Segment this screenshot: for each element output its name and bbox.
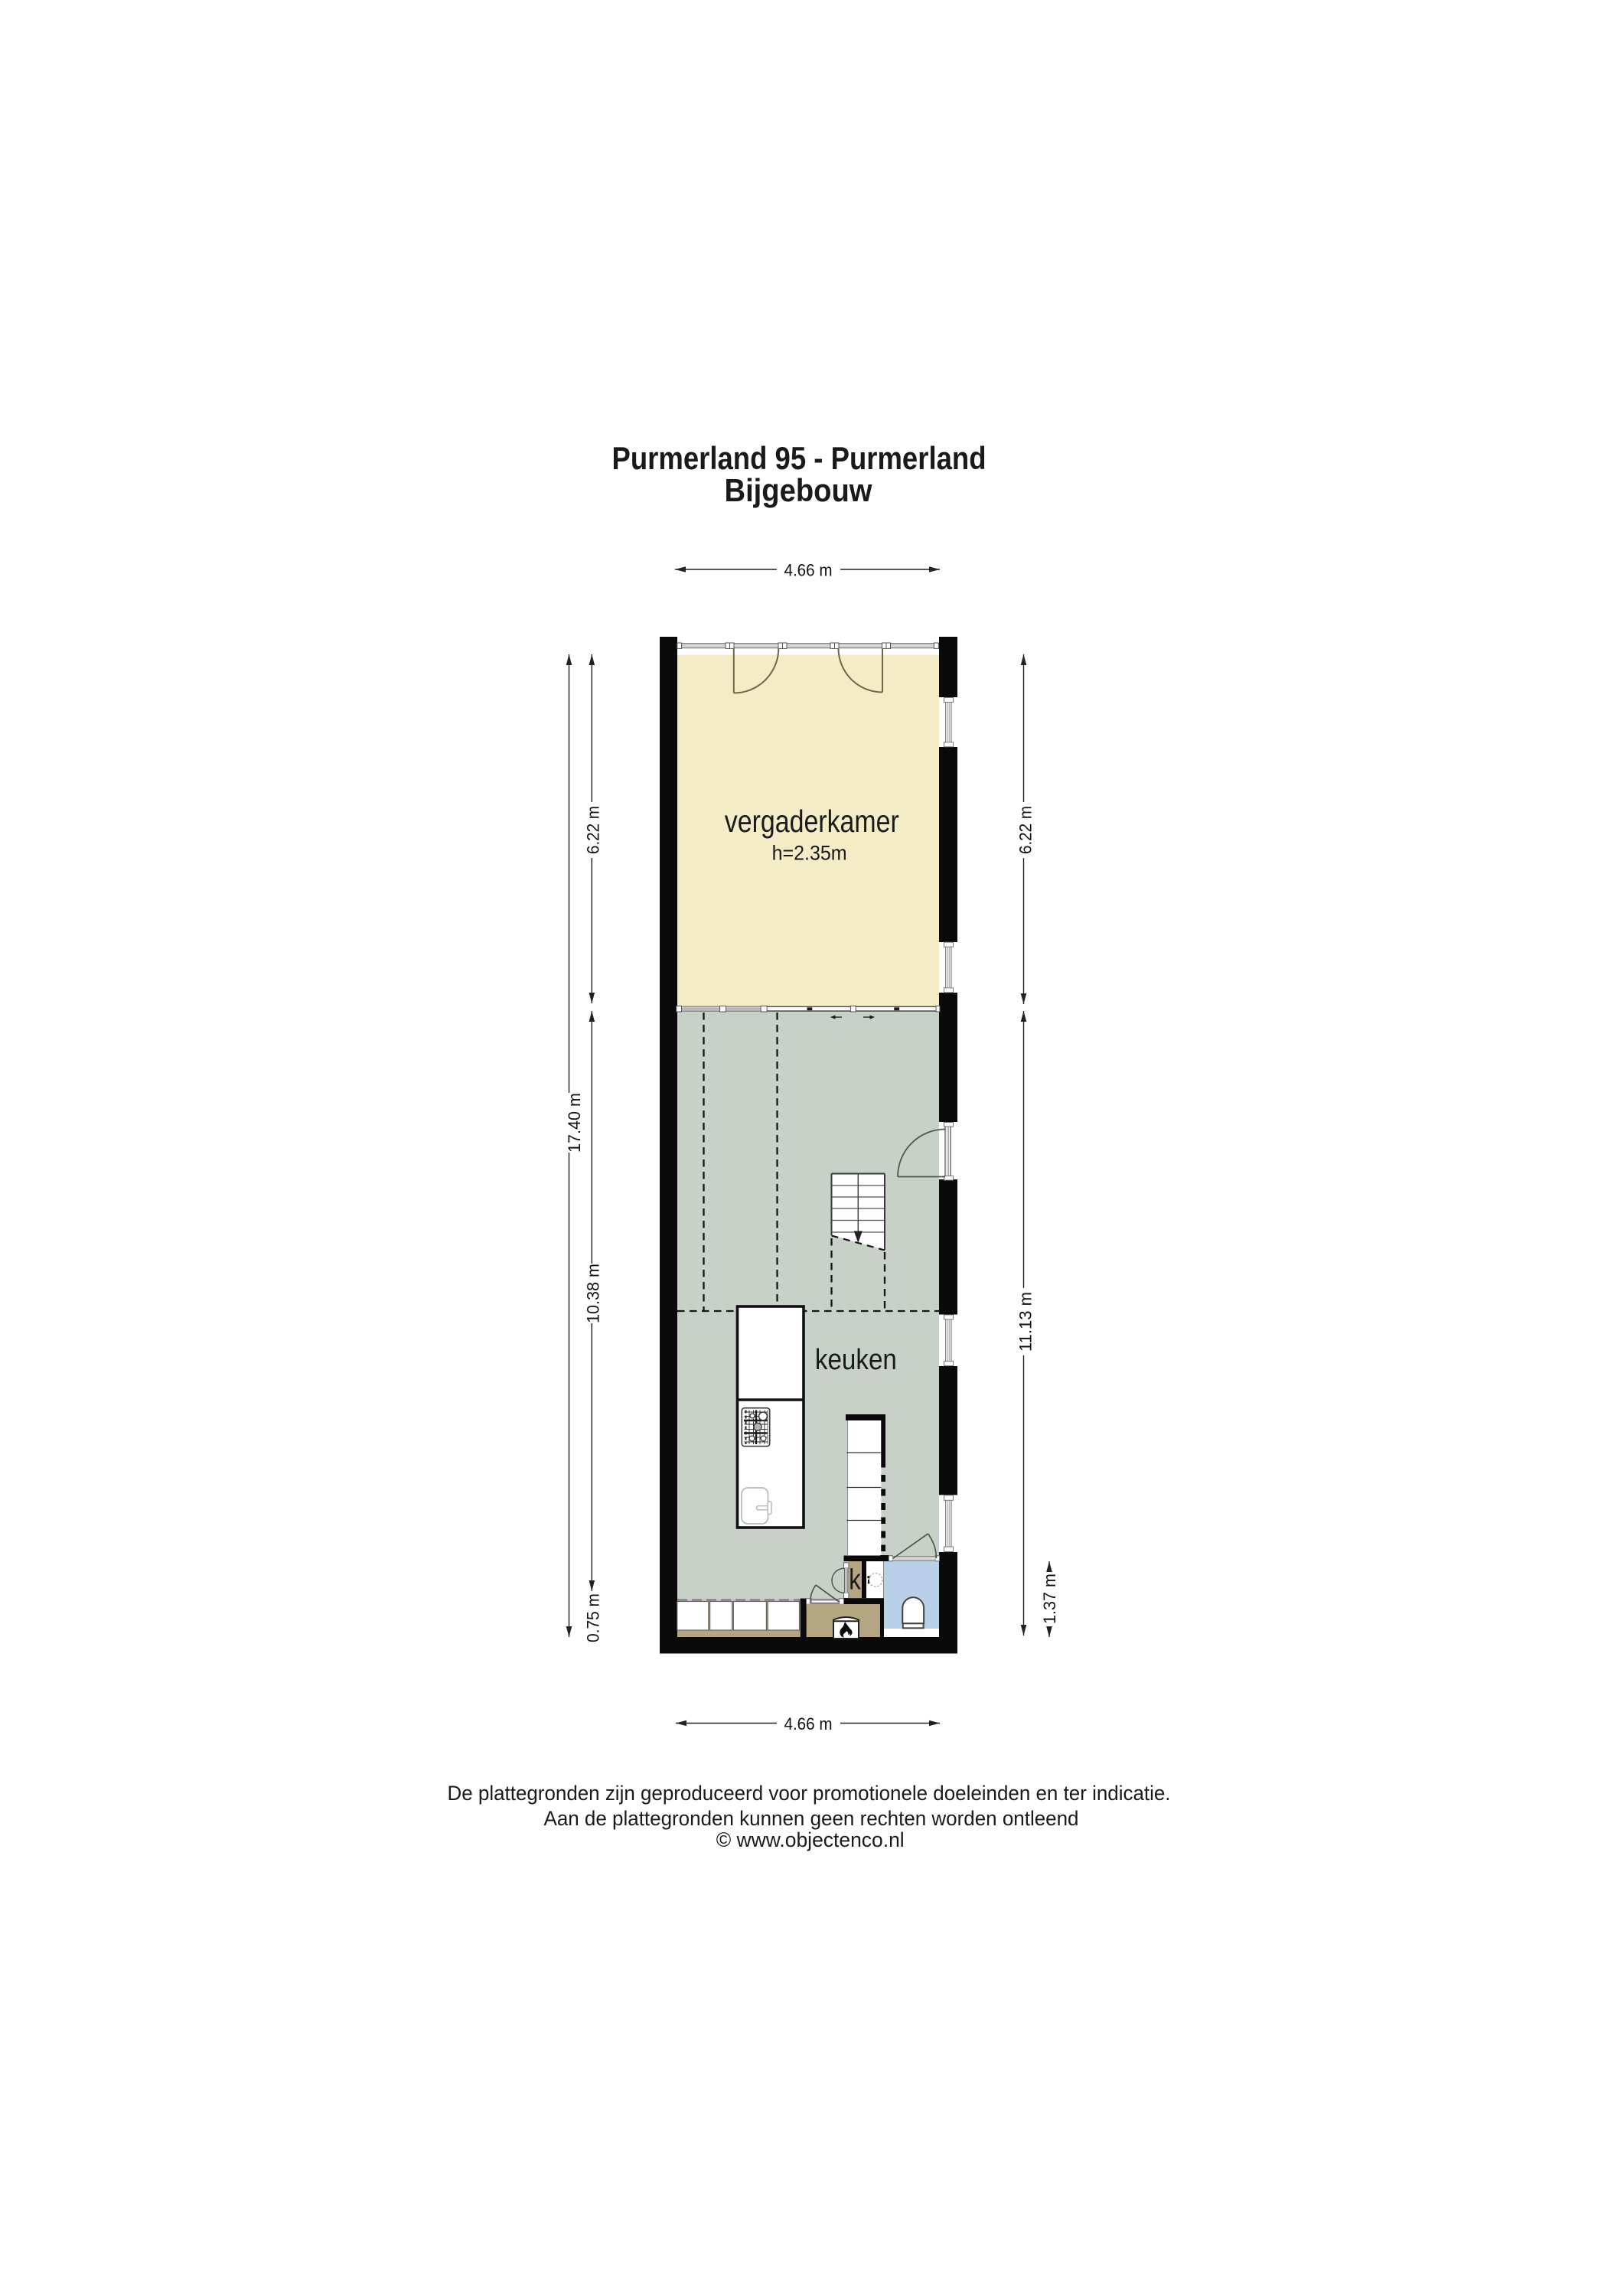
svg-text:11.13 m: 11.13 m xyxy=(1016,1292,1035,1352)
svg-text:© www.objectenco.nl: © www.objectenco.nl xyxy=(716,1828,905,1851)
svg-text:6.22 m: 6.22 m xyxy=(584,806,603,854)
svg-text:keuken: keuken xyxy=(815,1344,897,1376)
svg-text:1.37 m: 1.37 m xyxy=(1040,1574,1059,1624)
svg-text:De plattegronden zijn geproduc: De plattegronden zijn geproduceerd voor … xyxy=(448,1782,1171,1805)
svg-text:k: k xyxy=(849,1564,861,1596)
svg-text:Purmerland 95 - Purmerland: Purmerland 95 - Purmerland xyxy=(612,440,986,476)
svg-text:h=2.35m: h=2.35m xyxy=(772,842,847,865)
svg-text:vergaderkamer: vergaderkamer xyxy=(725,804,899,839)
svg-text:Aan de plattegronden kunnen ge: Aan de plattegronden kunnen geen rechten… xyxy=(544,1807,1079,1830)
svg-text:0.75 m: 0.75 m xyxy=(584,1593,603,1642)
svg-text:Bijgebouw: Bijgebouw xyxy=(725,472,872,508)
svg-text:4.66 m: 4.66 m xyxy=(784,1714,833,1733)
svg-text:4.66 m: 4.66 m xyxy=(784,561,833,580)
svg-text:17.40 m: 17.40 m xyxy=(565,1093,584,1153)
svg-text:6.22 m: 6.22 m xyxy=(1016,806,1035,854)
svg-text:10.38 m: 10.38 m xyxy=(584,1264,603,1323)
